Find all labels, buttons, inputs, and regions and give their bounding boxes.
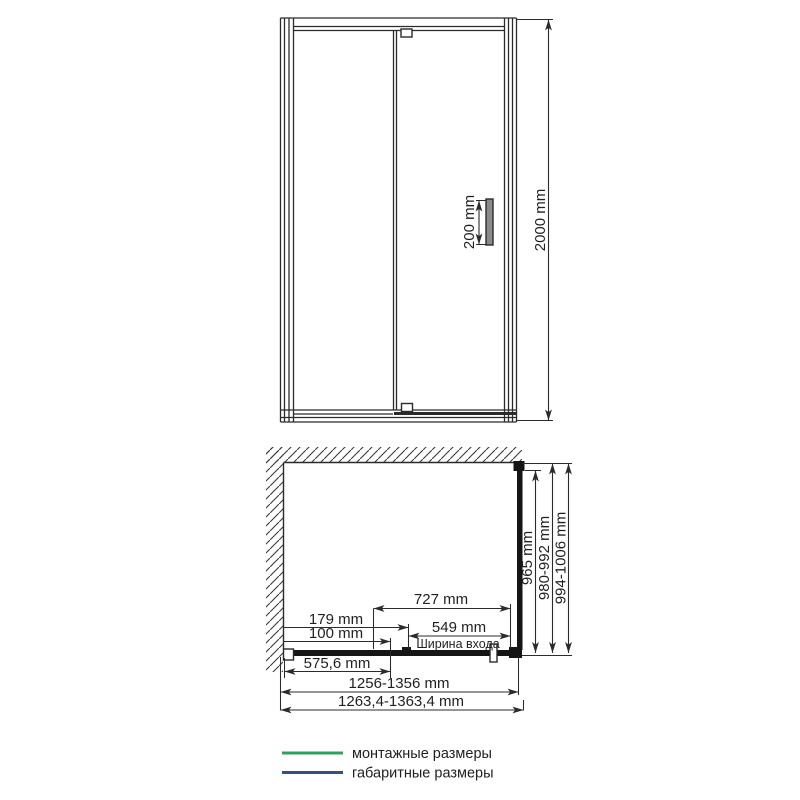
dim-100-label: 100 mm — [309, 625, 363, 642]
dim-575-label: 575,6 mm — [304, 655, 371, 672]
side-panel-wall-profile — [514, 461, 525, 471]
dim-height-2000: 2000 mm — [517, 20, 553, 421]
front-frame-lines — [281, 18, 517, 422]
plan-view: 727 mm 179 mm 549 mm Ширина входа 100 mm… — [266, 447, 572, 711]
legend-overall-label: габаритные размеры — [352, 766, 494, 782]
top-roller-bracket — [401, 29, 412, 37]
dim-overall-width-label: 1263,4-1363,4 mm — [338, 693, 464, 710]
dim-handle-200: 200 mm — [461, 195, 486, 249]
corner-connector-plan — [509, 647, 522, 658]
dim-overall-depth-label: 994-1006 mm — [553, 512, 570, 605]
dim-mounting-depth: 980-992 mm — [536, 464, 553, 654]
dim-965-label: 965 mm — [519, 531, 536, 585]
entry-width-label: Ширина входа — [416, 637, 499, 651]
dim-549: 549 mm Ширина входа — [409, 619, 511, 651]
dim-mounting-width-label: 1256-1356 mm — [349, 675, 450, 692]
dim-mounting-width: 1256-1356 mm — [281, 675, 519, 692]
door-handle-front — [486, 199, 493, 245]
legend-mounting-label: монтажные размеры — [352, 746, 492, 762]
dim-height-2000-label: 2000 mm — [532, 189, 549, 252]
legend: монтажные размеры габаритные размеры — [282, 746, 494, 782]
shower-door-dimension-diagram: 200 mm 2000 mm 727 mm 179 mm — [0, 0, 800, 800]
dim-727: 727 mm — [374, 591, 511, 609]
dim-overall-width: 1263,4-1363,4 mm — [281, 693, 524, 710]
extension-lines — [281, 464, 573, 711]
dim-handle-200-label: 200 mm — [461, 195, 478, 249]
wall-hatch-left — [266, 447, 283, 672]
bottom-roller-bracket — [402, 404, 413, 412]
technical-drawing-page: 200 mm 2000 mm 727 mm 179 mm — [0, 0, 800, 800]
dim-727-label: 727 mm — [414, 591, 468, 608]
dim-575: 575,6 mm — [285, 655, 391, 672]
wall-hatch-top — [266, 447, 522, 463]
dim-mounting-depth-label: 980-992 mm — [536, 516, 553, 600]
dim-549-label: 549 mm — [432, 619, 486, 636]
pivot-connector-plan — [402, 647, 411, 656]
dim-overall-depth: 994-1006 mm — [553, 464, 570, 654]
front-view: 200 mm 2000 mm — [281, 18, 554, 422]
